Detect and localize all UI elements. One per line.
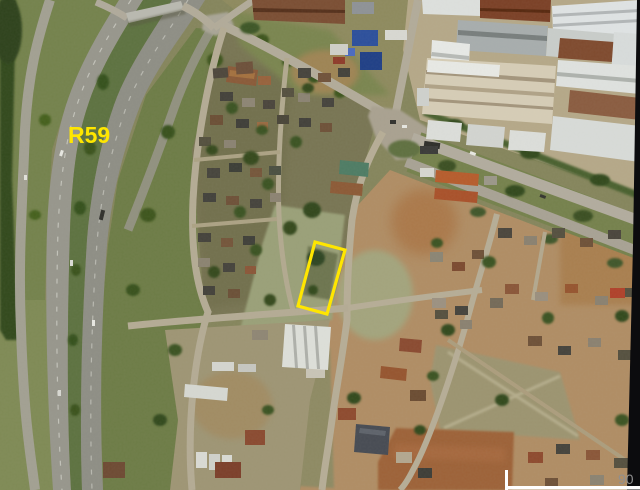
svg-text:R59: R59	[68, 122, 110, 148]
svg-text:90: 90	[618, 471, 634, 487]
